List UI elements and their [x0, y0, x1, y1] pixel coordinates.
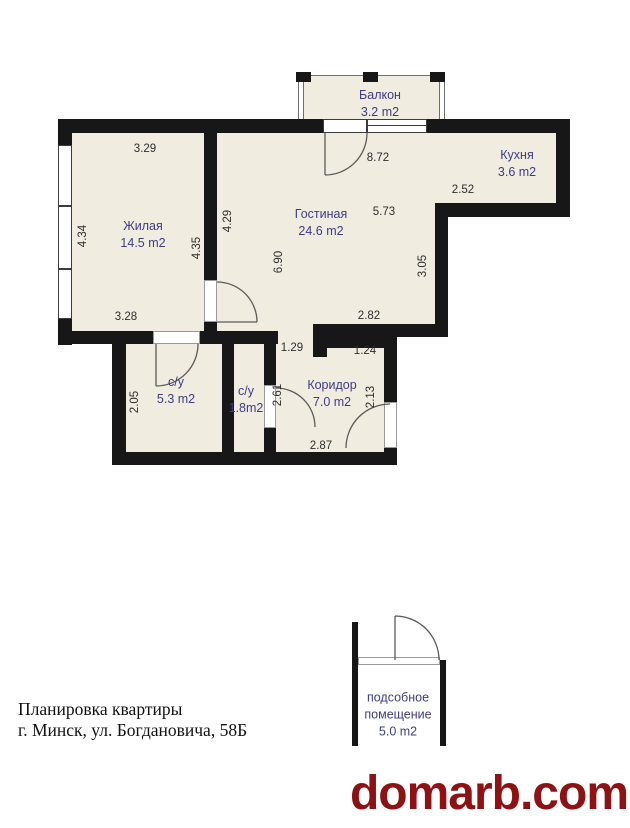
- room-label: Кухня3.6 m2: [498, 147, 536, 181]
- room-name: Жилая: [120, 218, 165, 235]
- dimension-label: 2.87: [310, 440, 332, 452]
- room-label: Балкон3.2 m2: [359, 87, 401, 121]
- dimension-label: 1.24: [354, 345, 376, 357]
- room-name: с/у: [229, 383, 264, 400]
- room-area: 14.5 m2: [120, 235, 165, 252]
- door-arc: [217, 282, 257, 322]
- dimension-label: 2.05: [129, 391, 141, 413]
- caption-line2: г. Минск, ул. Богдановича, 58Б: [18, 720, 247, 741]
- room-area: 3.2 m2: [359, 104, 401, 121]
- room-area: 1.8m2: [229, 400, 264, 417]
- dimension-label: 2.52: [452, 184, 474, 196]
- caption-line1: Планировка квартиры: [18, 699, 247, 720]
- dimension-label: 4.29: [222, 210, 234, 232]
- room-label: Жилая14.5 m2: [120, 218, 165, 252]
- room-name: Гостиная: [295, 206, 347, 223]
- door-arc: [395, 616, 439, 660]
- dimension-label: 2.13: [365, 386, 377, 408]
- dimension-label: 8.72: [367, 152, 389, 164]
- plan-caption: Планировка квартиры г. Минск, ул. Богдан…: [18, 699, 247, 740]
- room-name: Кухня: [498, 147, 536, 164]
- dimension-label: 3.29: [134, 143, 156, 155]
- dimension-label: 5.73: [373, 206, 395, 218]
- room-area: 5.0 m2: [351, 724, 445, 741]
- room-area: 5.3 m2: [157, 391, 195, 408]
- dimension-label: 3.28: [115, 311, 137, 323]
- dimension-label: 2.82: [358, 310, 380, 322]
- dimension-label: 3.05: [417, 255, 429, 277]
- room-label: Гостиная24.6 m2: [295, 206, 347, 240]
- room-name: Балкон: [359, 87, 401, 104]
- door-arc: [325, 133, 367, 175]
- room-label: подсобное помещение5.0 m2: [351, 690, 445, 741]
- dimension-label: 6.90: [273, 251, 285, 273]
- room-label: с/у1.8m2: [229, 383, 264, 417]
- watermark: domarb.com: [350, 766, 628, 821]
- dimension-label: 1.29: [281, 342, 303, 354]
- room-name: Коридор: [307, 377, 356, 394]
- dimension-label: 4.35: [191, 237, 203, 259]
- dimension-label: 4.34: [77, 225, 89, 247]
- room-name: с/у: [157, 374, 195, 391]
- room-area: 3.6 m2: [498, 164, 536, 181]
- room-label: с/у5.3 m2: [157, 374, 195, 408]
- room-label: Коридор7.0 m2: [307, 377, 356, 411]
- room-area: 7.0 m2: [307, 394, 356, 411]
- room-area: 24.6 m2: [295, 223, 347, 240]
- room-name: подсобное помещение: [351, 690, 445, 724]
- floor-plan: Балкон3.2 m2Кухня3.6 m2Жилая14.5 m2Гости…: [0, 0, 630, 828]
- dimension-label: 2.61: [272, 384, 284, 406]
